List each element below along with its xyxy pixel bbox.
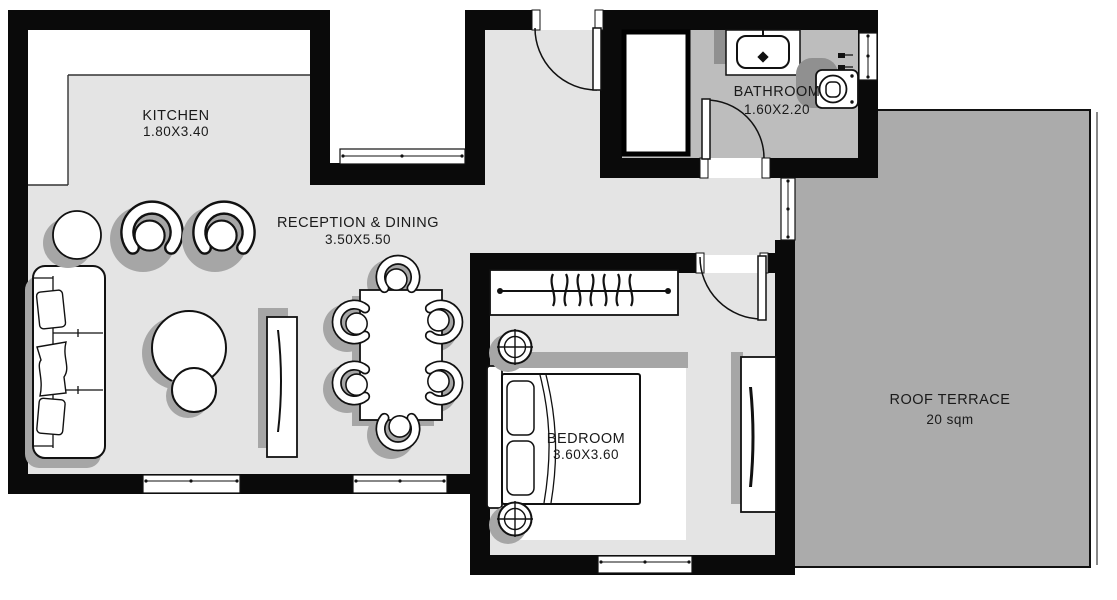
- kitchen-dims: 1.80X3.40: [143, 124, 209, 139]
- reception-dims: 3.50X5.50: [325, 232, 391, 247]
- entrance-door-leaf: [593, 28, 601, 90]
- dining-chair: [428, 305, 458, 340]
- dining-chair: [381, 416, 416, 446]
- window-reception-2: [353, 475, 447, 493]
- sink-side-panel: [714, 30, 726, 64]
- bedroom-label: BEDROOM: [547, 431, 625, 447]
- sofa-pillow-1: [36, 290, 66, 330]
- shower-shaft: [624, 32, 688, 154]
- wall-top-kitchen: [8, 10, 330, 30]
- wall-notch-right: [310, 10, 330, 185]
- floor-plan: KITCHEN 1.80X3.40 RECEPTION & DINING 3.5…: [0, 0, 1117, 600]
- headboard: [487, 366, 502, 508]
- window-bathroom: [859, 33, 877, 80]
- dining-chair: [428, 366, 458, 401]
- wall-bathroom-bottom-left: [600, 158, 706, 178]
- terrace-label: ROOF TERRACE: [890, 392, 1011, 408]
- dining-chair: [381, 260, 416, 290]
- bedroom-dims: 3.60X3.60: [553, 447, 619, 462]
- kitchen-label: KITCHEN: [142, 108, 209, 124]
- window-notch: [340, 149, 465, 164]
- wall-top-entry: [465, 10, 535, 30]
- terrace-dims: 20 sqm: [926, 412, 973, 427]
- wall-entry-left: [465, 10, 485, 185]
- sofa: [25, 266, 105, 468]
- bathroom-label: BATHROOM: [734, 84, 821, 100]
- floor-plan-svg: KITCHEN 1.80X3.40 RECEPTION & DINING 3.5…: [0, 0, 1117, 600]
- wall-bathroom-left: [600, 30, 622, 158]
- sink: [726, 30, 800, 75]
- dining-chair: [337, 305, 367, 340]
- window-reception-1: [143, 475, 240, 493]
- wall-top-bathroom: [597, 10, 878, 30]
- hall-floor-left: [485, 160, 600, 255]
- pillow: [507, 381, 534, 435]
- bedroom-door-leaf: [758, 256, 766, 320]
- bathroom-door-leaf: [702, 99, 710, 159]
- dining-chair: [337, 366, 367, 401]
- bedroom-tv-unit: [731, 352, 776, 512]
- tv-console: [258, 308, 297, 457]
- sofa-throw-blanket: [37, 342, 67, 396]
- hall-floor-right: [600, 178, 781, 255]
- wall-notch-bottom: [310, 163, 485, 185]
- toilet-seat: [826, 82, 840, 97]
- pillow: [507, 441, 534, 495]
- kitchen-counter-top: [28, 30, 310, 75]
- window-hall-terrace: [781, 178, 795, 240]
- roof-terrace-floor: [795, 110, 1090, 567]
- wall-bedroom-right: [775, 240, 795, 575]
- sofa-pillow-2: [36, 398, 65, 435]
- wardrobe: [490, 270, 678, 315]
- wall-bathroom-bottom-right: [764, 158, 878, 178]
- reception-label: RECEPTION & DINING: [277, 215, 439, 231]
- valve-icon: [838, 53, 845, 58]
- kitchen-counter-left: [28, 75, 68, 185]
- bathroom-dims: 1.60X2.20: [744, 102, 810, 117]
- window-bedroom: [598, 556, 692, 573]
- entry-hall-floor: [485, 30, 600, 160]
